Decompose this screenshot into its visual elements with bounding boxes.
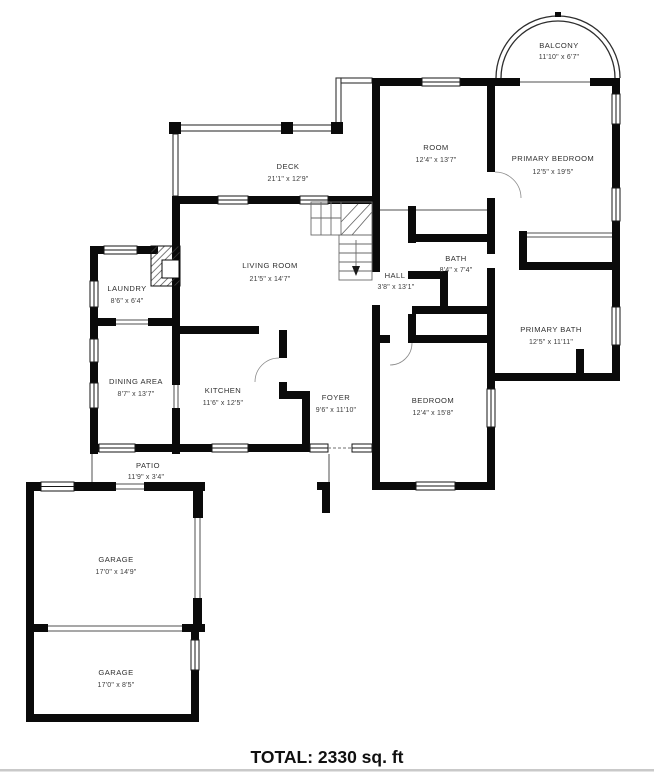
- svg-text:12'4" x 15'8": 12'4" x 15'8": [413, 410, 454, 417]
- svg-text:BEDROOM: BEDROOM: [412, 396, 454, 405]
- svg-text:8'6" x 6'4": 8'6" x 6'4": [111, 298, 144, 305]
- svg-text:PRIMARY BEDROOM: PRIMARY BEDROOM: [512, 154, 594, 163]
- svg-text:17'0" x 8'5": 17'0" x 8'5": [98, 682, 135, 689]
- svg-text:LIVING ROOM: LIVING ROOM: [242, 261, 298, 270]
- room-label-dining-area: DINING AREA 8'7" x 13'7": [109, 377, 163, 398]
- svg-text:11'10" x 6'7": 11'10" x 6'7": [539, 54, 580, 61]
- room-label-patio: PATIO 11'9" x 3'4": [128, 461, 165, 481]
- svg-text:PRIMARY BATH: PRIMARY BATH: [520, 325, 582, 334]
- floor-plan-page: BALCONY 11'10" x 6'7" ROOM 12'4" x 13'7"…: [0, 0, 654, 775]
- svg-text:21'1" x 12'9": 21'1" x 12'9": [268, 176, 309, 183]
- svg-text:17'0" x 14'9": 17'0" x 14'9": [96, 569, 137, 576]
- svg-text:GARAGE: GARAGE: [98, 555, 133, 564]
- svg-text:12'5" x 11'11": 12'5" x 11'11": [529, 339, 573, 346]
- svg-text:PATIO: PATIO: [136, 461, 160, 470]
- room-label-deck: DECK 21'1" x 12'9": [268, 162, 309, 183]
- svg-text:12'4" x 13'7": 12'4" x 13'7": [416, 157, 457, 164]
- svg-text:BALCONY: BALCONY: [539, 41, 578, 50]
- room-label-laundry: LAUNDRY 8'6" x 6'4": [107, 284, 146, 305]
- openings: [48, 210, 612, 631]
- svg-text:KITCHEN: KITCHEN: [205, 386, 241, 395]
- room-label-garage-lower: GARAGE 17'0" x 8'5": [98, 668, 135, 689]
- staircase-icon: [311, 202, 372, 280]
- total-area-label: TOTAL: 2330 sq. ft: [251, 747, 404, 767]
- room-label-bath: BATH 8'4" x 7'4": [440, 254, 473, 274]
- fireplace-icon: [151, 246, 180, 286]
- svg-text:HALL: HALL: [385, 271, 406, 280]
- room-label-balcony: BALCONY 11'10" x 6'7": [539, 41, 580, 61]
- svg-text:DINING AREA: DINING AREA: [109, 377, 163, 386]
- floor-plan: BALCONY 11'10" x 6'7" ROOM 12'4" x 13'7"…: [0, 0, 654, 775]
- svg-text:9'6" x 11'10": 9'6" x 11'10": [316, 407, 357, 414]
- room-label-bedroom: BEDROOM 12'4" x 15'8": [412, 396, 454, 417]
- svg-text:11'6" x 12'5": 11'6" x 12'5": [203, 400, 244, 407]
- room-label-foyer: FOYER 9'6" x 11'10": [316, 393, 357, 414]
- footer-divider: [0, 769, 654, 772]
- room-label-kitchen: KITCHEN 11'6" x 12'5": [203, 386, 244, 407]
- svg-text:8'7" x 13'7": 8'7" x 13'7": [118, 391, 155, 398]
- room-label-garage-upper: GARAGE 17'0" x 14'9": [96, 555, 137, 576]
- room-label-primary-bath: PRIMARY BATH 12'5" x 11'11": [520, 325, 582, 346]
- svg-text:8'4" x 7'4": 8'4" x 7'4": [440, 267, 473, 274]
- svg-text:FOYER: FOYER: [322, 393, 350, 402]
- room-label-primary-bedroom: PRIMARY BEDROOM 12'5" x 19'5": [512, 154, 594, 176]
- svg-text:GARAGE: GARAGE: [98, 668, 133, 677]
- svg-text:3'8" x 13'1": 3'8" x 13'1": [378, 284, 415, 291]
- svg-text:21'5" x 14'7": 21'5" x 14'7": [250, 276, 291, 283]
- svg-text:ROOM: ROOM: [423, 143, 448, 152]
- svg-text:DECK: DECK: [277, 162, 300, 171]
- room-label-living-room: LIVING ROOM 21'5" x 14'7": [242, 261, 298, 283]
- svg-text:LAUNDRY: LAUNDRY: [107, 284, 146, 293]
- svg-text:12'5" x 19'5": 12'5" x 19'5": [533, 169, 574, 176]
- room-labels: BALCONY 11'10" x 6'7" ROOM 12'4" x 13'7"…: [96, 41, 595, 689]
- svg-text:11'9" x 3'4": 11'9" x 3'4": [128, 474, 165, 481]
- svg-text:BATH: BATH: [445, 254, 467, 263]
- room-label-room: ROOM 12'4" x 13'7": [416, 143, 457, 164]
